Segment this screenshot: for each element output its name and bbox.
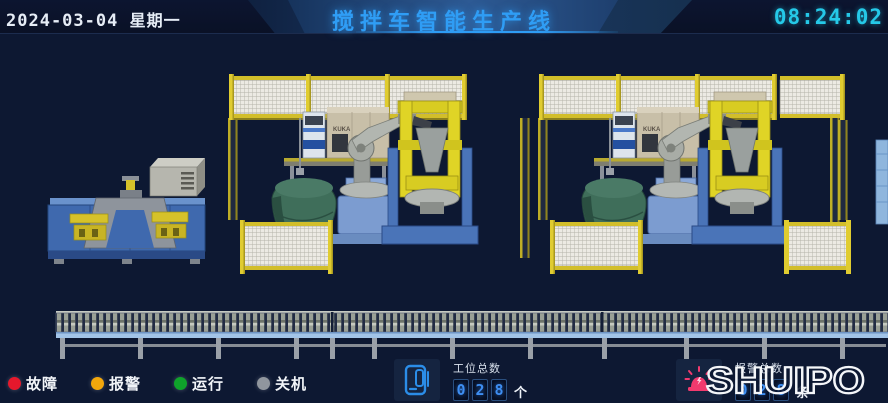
- legend-item-off: 关机: [257, 373, 307, 394]
- station-counter-label: 工位总数: [453, 360, 527, 376]
- legend-item-running: 运行: [174, 373, 224, 394]
- station-counter: 工位总数 0 2 8 个: [394, 359, 527, 401]
- legend-item-fault: 故障: [8, 373, 58, 394]
- fixture-machine: [48, 158, 205, 264]
- station-digit: 2: [472, 379, 488, 401]
- status-legend: 故障 报警 运行 关机: [8, 373, 340, 394]
- off-dot-icon: [257, 377, 270, 390]
- production-line-dashboard: KUKA: [0, 0, 888, 403]
- station-digit: 0: [453, 379, 469, 401]
- station-counter-unit: 个: [514, 382, 527, 401]
- clamp-left: [70, 214, 108, 240]
- clamp-right: [152, 212, 188, 238]
- legend-label: 报警: [109, 373, 141, 394]
- running-dot-icon: [174, 377, 187, 390]
- legend-label: 关机: [275, 373, 307, 394]
- clock-display: 08:24:02: [774, 5, 883, 29]
- production-line-scene: KUKA: [0, 0, 888, 403]
- fault-dot-icon: [8, 377, 21, 390]
- electrical-cabinet: [150, 158, 205, 196]
- robot-cell-1: [228, 74, 530, 274]
- alarm-dot-icon: [91, 377, 104, 390]
- station-digit: 8: [491, 379, 507, 401]
- legend-label: 运行: [192, 373, 224, 394]
- status-bar: 故障 报警 运行 关机: [0, 355, 888, 403]
- header-bar: 2024-03-04 星期一 搅拌车智能生产线 08:24:02: [0, 0, 888, 34]
- legend-label: 故障: [26, 373, 58, 394]
- legend-item-alarm: 报警: [91, 373, 141, 394]
- hmi-device-icon: [394, 359, 440, 401]
- roller-conveyor: [56, 311, 888, 359]
- page-title: 搅拌车智能生产线: [0, 4, 888, 36]
- shuipo-logo: SHUIPO: [706, 361, 888, 401]
